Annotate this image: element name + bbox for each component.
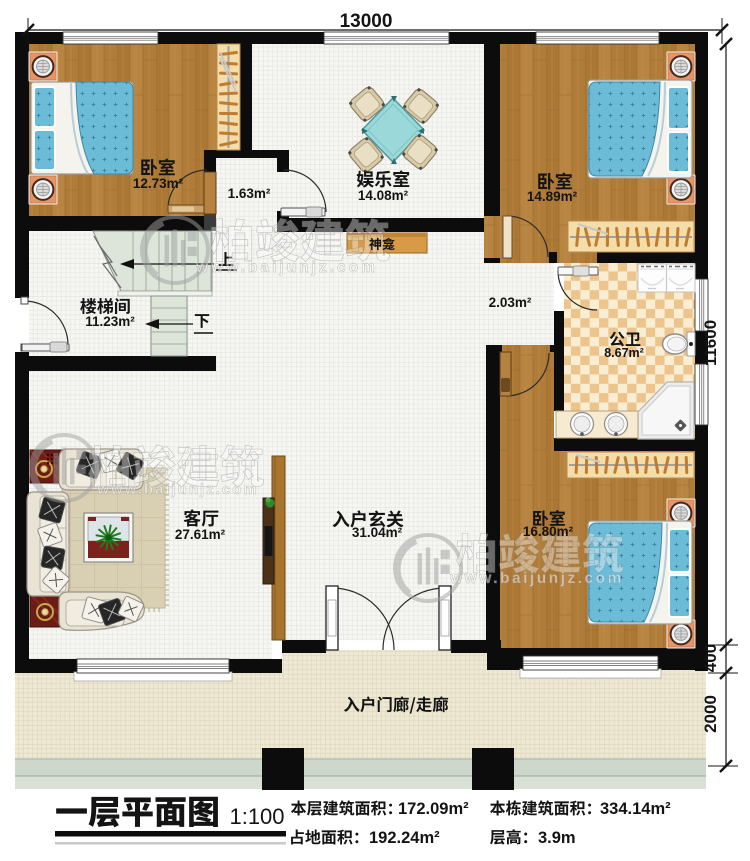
svg-text:8.67m²: 8.67m² xyxy=(604,346,644,360)
svg-text:172.09m²: 172.09m² xyxy=(398,800,469,818)
svg-text:www.baijunjz.com: www.baijunjz.com xyxy=(449,570,624,587)
svg-text:2000: 2000 xyxy=(701,695,720,733)
svg-text:16.80m²: 16.80m² xyxy=(523,524,574,539)
svg-text:400: 400 xyxy=(701,644,720,672)
svg-text:2.03m²: 2.03m² xyxy=(489,295,532,310)
svg-text:11600: 11600 xyxy=(701,320,720,366)
svg-text:31.04m²: 31.04m² xyxy=(352,525,403,540)
svg-text:www.baijunjz.com: www.baijunjz.com xyxy=(195,259,378,276)
svg-text:11.23m²: 11.23m² xyxy=(85,314,135,329)
svg-text:12.73m²: 12.73m² xyxy=(133,176,184,191)
svg-text:www.baijunjz.com: www.baijunjz.com xyxy=(96,481,258,498)
svg-text:14.08m²: 14.08m² xyxy=(358,188,409,203)
svg-text:1:100: 1:100 xyxy=(229,804,284,829)
svg-text:192.24m²: 192.24m² xyxy=(369,829,440,847)
svg-text:27.61m²: 27.61m² xyxy=(175,527,226,542)
svg-text:334.14m²: 334.14m² xyxy=(600,800,671,818)
svg-text:13000: 13000 xyxy=(340,11,393,32)
svg-text:3.9m: 3.9m xyxy=(538,829,576,847)
svg-text:1.63m²: 1.63m² xyxy=(228,186,271,201)
svg-text:14.89m²: 14.89m² xyxy=(527,189,578,204)
